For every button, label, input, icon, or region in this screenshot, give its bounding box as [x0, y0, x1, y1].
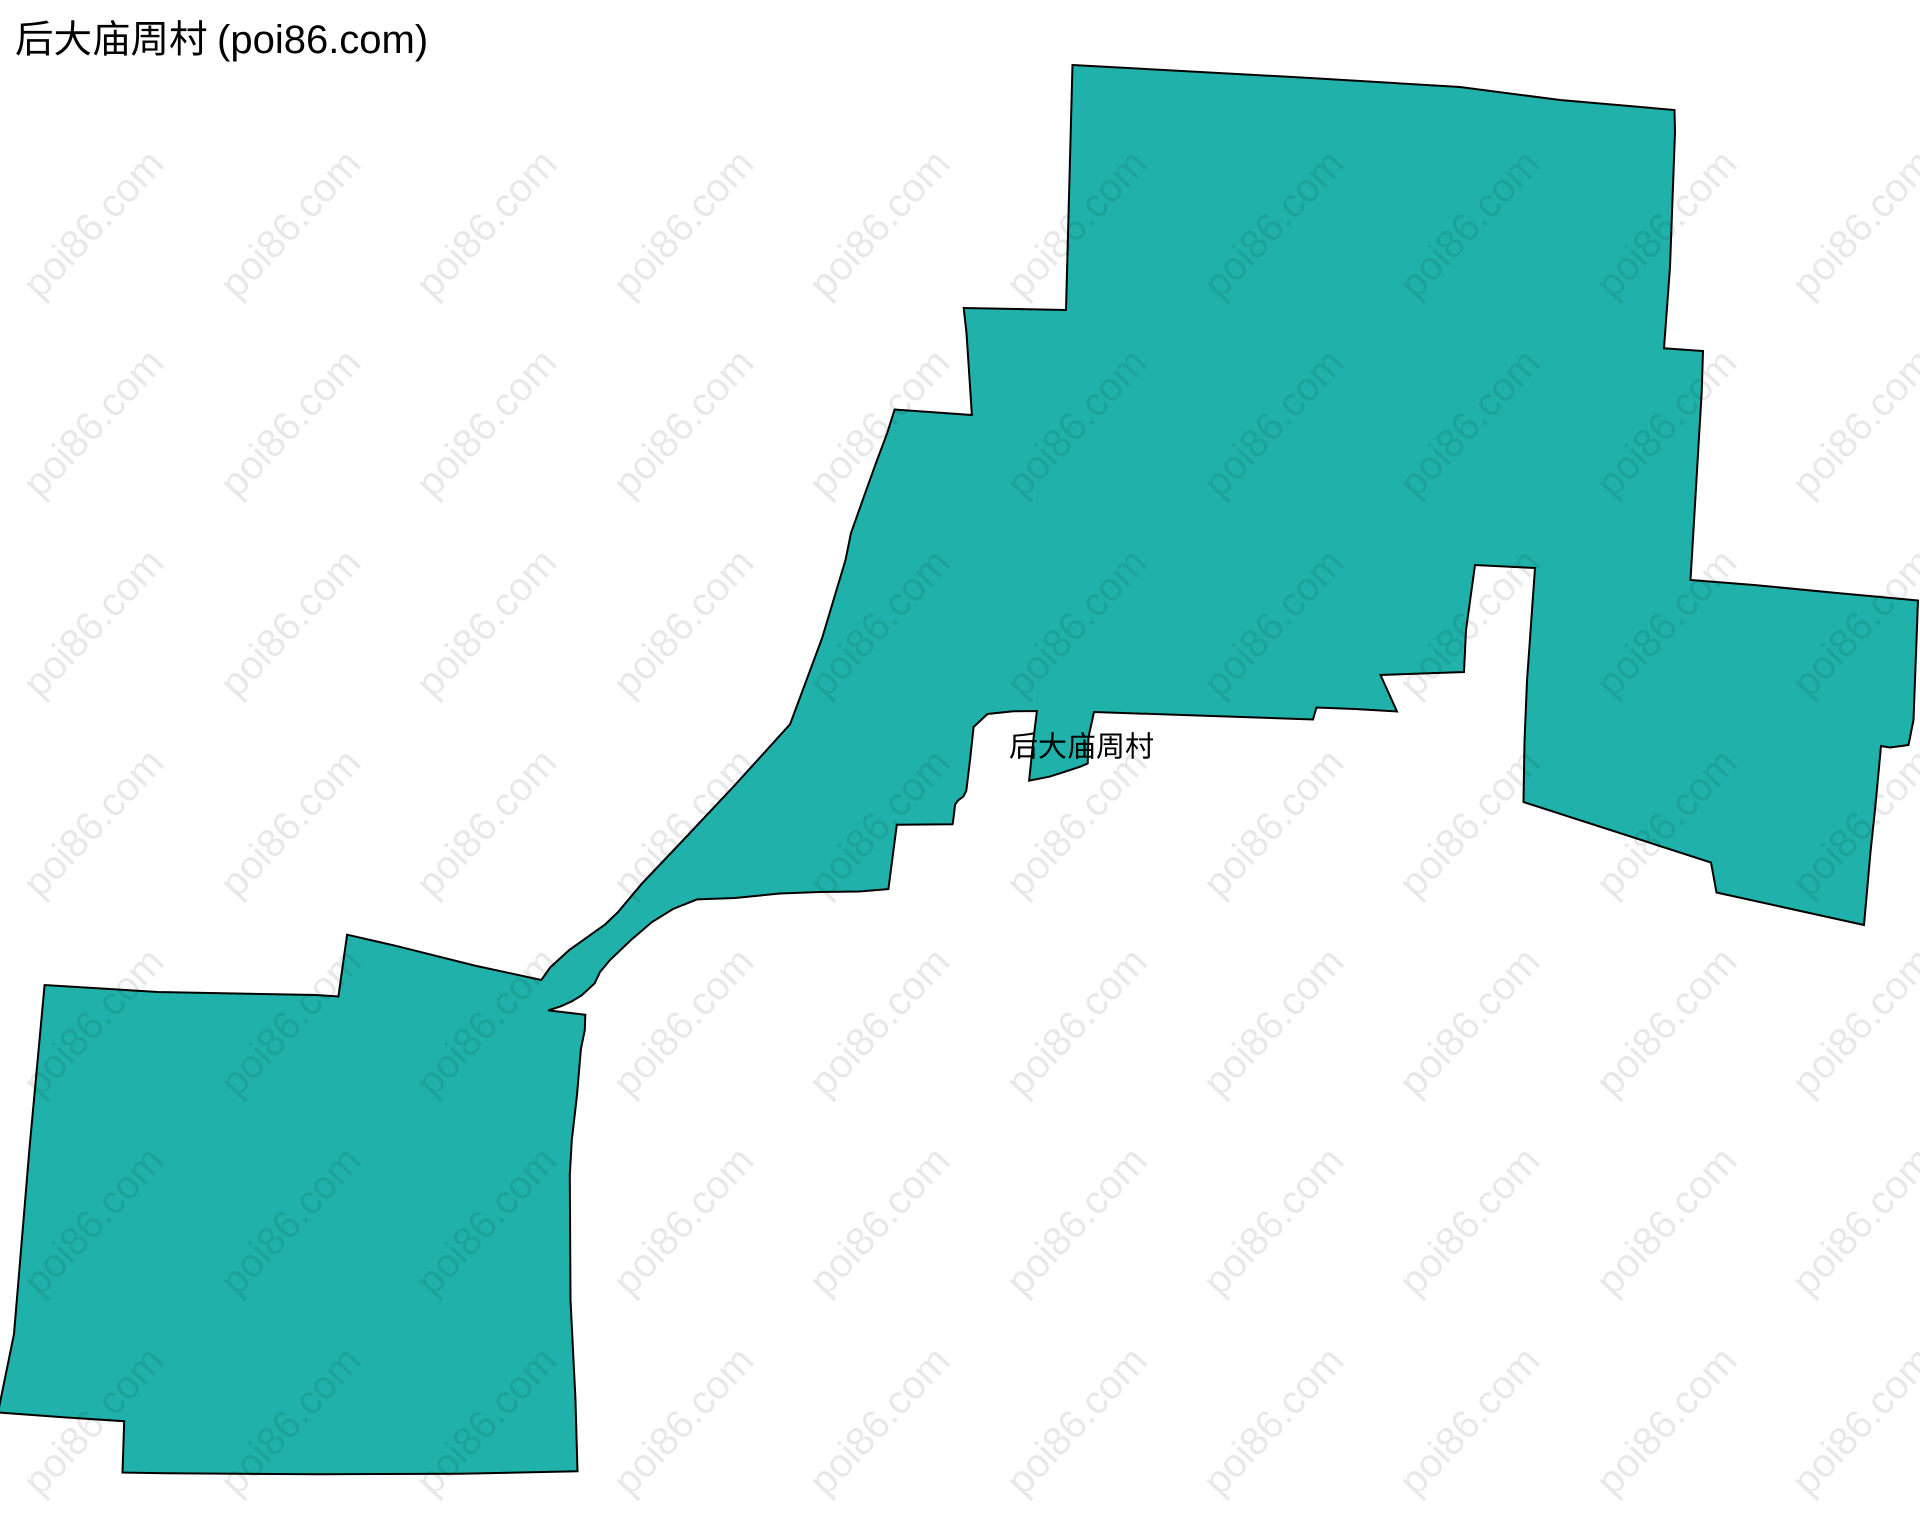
svg-text:poi86.com: poi86.com [997, 1339, 1155, 1504]
svg-text:poi86.com: poi86.com [604, 541, 762, 706]
svg-text:poi86.com: poi86.com [1587, 1139, 1745, 1304]
svg-text:poi86.com: poi86.com [407, 741, 565, 906]
svg-text:poi86.com: poi86.com [211, 541, 369, 706]
svg-text:poi86.com: poi86.com [1194, 940, 1352, 1105]
svg-text:poi86.com: poi86.com [14, 341, 172, 506]
svg-text:poi86.com: poi86.com [604, 341, 762, 506]
svg-text:poi86.com: poi86.com [407, 142, 565, 307]
svg-text:poi86.com: poi86.com [1194, 1339, 1352, 1504]
svg-text:(poi86.com): (poi86.com) [217, 18, 428, 62]
svg-text:poi86.com: poi86.com [14, 142, 172, 307]
svg-text:poi86.com: poi86.com [997, 940, 1155, 1105]
svg-text:poi86.com: poi86.com [800, 1339, 958, 1504]
svg-text:poi86.com: poi86.com [211, 741, 369, 906]
svg-text:poi86.com: poi86.com [1390, 940, 1548, 1105]
svg-text:poi86.com: poi86.com [1390, 741, 1548, 906]
svg-text:poi86.com: poi86.com [1783, 1139, 1920, 1304]
svg-text:poi86.com: poi86.com [1587, 940, 1745, 1105]
svg-text:poi86.com: poi86.com [1194, 741, 1352, 906]
svg-text:poi86.com: poi86.com [1390, 1339, 1548, 1504]
svg-text:poi86.com: poi86.com [800, 940, 958, 1105]
svg-text:poi86.com: poi86.com [211, 142, 369, 307]
svg-text:poi86.com: poi86.com [604, 1339, 762, 1504]
svg-text:poi86.com: poi86.com [211, 341, 369, 506]
svg-text:poi86.com: poi86.com [1194, 1139, 1352, 1304]
svg-text:poi86.com: poi86.com [604, 1139, 762, 1304]
svg-text:poi86.com: poi86.com [407, 341, 565, 506]
svg-text:poi86.com: poi86.com [800, 1139, 958, 1304]
svg-text:poi86.com: poi86.com [800, 142, 958, 307]
svg-text:poi86.com: poi86.com [14, 541, 172, 706]
svg-text:poi86.com: poi86.com [1783, 940, 1920, 1105]
svg-text:poi86.com: poi86.com [1783, 1339, 1920, 1504]
svg-text:poi86.com: poi86.com [14, 741, 172, 906]
svg-text:poi86.com: poi86.com [604, 940, 762, 1105]
svg-text:poi86.com: poi86.com [407, 541, 565, 706]
svg-text:poi86.com: poi86.com [1783, 341, 1920, 506]
svg-text:poi86.com: poi86.com [1783, 142, 1920, 307]
svg-text:poi86.com: poi86.com [1587, 1339, 1745, 1504]
svg-text:poi86.com: poi86.com [997, 1139, 1155, 1304]
svg-text:poi86.com: poi86.com [604, 142, 762, 307]
svg-text:poi86.com: poi86.com [1390, 1139, 1548, 1304]
